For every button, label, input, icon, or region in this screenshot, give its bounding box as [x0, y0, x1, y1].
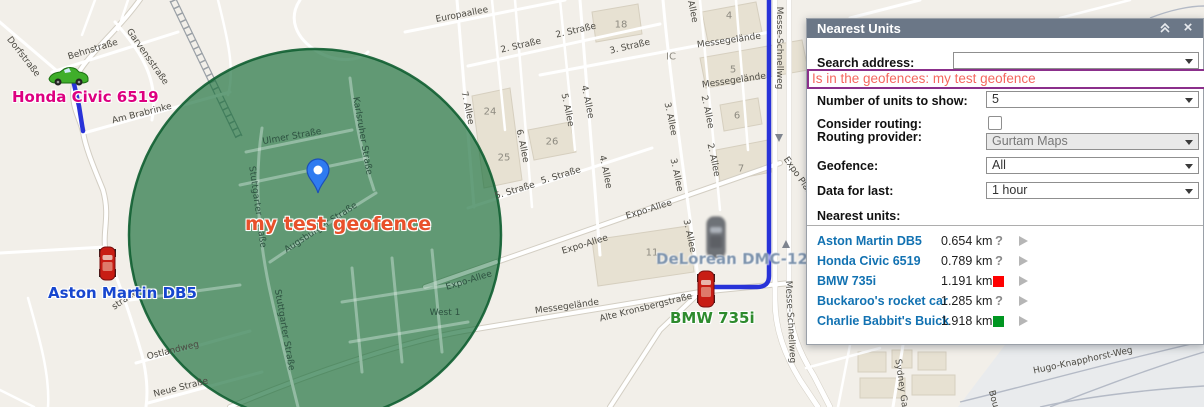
- panel-title: Nearest Units: [817, 21, 901, 36]
- unit-name-link[interactable]: BMW 735i: [817, 271, 876, 291]
- unit-name-link[interactable]: Honda Civic 6519: [817, 251, 921, 271]
- unit-distance: 0.654 km: [941, 231, 992, 251]
- unit-distance: 1.285 km: [941, 291, 992, 311]
- vehicle-marker-delorean[interactable]: [707, 217, 725, 258]
- unit-play-icon[interactable]: [1019, 316, 1028, 326]
- app-root: DorfstraßeBehnstraßeGarvensstraßeAm Brab…: [0, 0, 1204, 407]
- geofence-filter-field[interactable]: Is in the geofences: my test geofence: [807, 69, 1204, 89]
- vehicle-marker-bmw[interactable]: [697, 271, 715, 307]
- units-to-show-select[interactable]: 5: [986, 91, 1199, 108]
- chevron-down-icon: [1185, 59, 1193, 64]
- divider: [807, 225, 1203, 226]
- car-hub: [57, 81, 60, 84]
- unit-distance: 1.918 km: [941, 311, 992, 331]
- close-panel-icon[interactable]: ×: [1180, 19, 1196, 38]
- unit-status-square: [993, 316, 1004, 327]
- unit-row[interactable]: Buckaroo's rocket car1.285 km?: [807, 291, 1203, 311]
- data-for-last-label: Data for last:: [817, 184, 893, 198]
- unit-play-icon[interactable]: [1019, 296, 1028, 306]
- unit-name-link[interactable]: Buckaroo's rocket car: [817, 291, 948, 311]
- geofence-name-label: my test geofence: [245, 213, 431, 235]
- chevron-down-icon: [1185, 98, 1193, 103]
- chevron-down-icon: [1185, 140, 1193, 145]
- geofence-select-label: Geofence:: [817, 159, 878, 173]
- car-windshield: [701, 280, 711, 285]
- geofence-value: All: [992, 158, 1006, 173]
- search-address-select[interactable]: [953, 52, 1199, 69]
- car-windshield: [710, 227, 722, 233]
- unit-row[interactable]: Honda Civic 65190.789 km?: [807, 251, 1203, 271]
- chevron-down-icon: [1185, 189, 1193, 194]
- car-roof: [701, 287, 711, 297]
- car-hub: [78, 81, 81, 84]
- unit-name-link[interactable]: Aston Martin DB5: [817, 231, 922, 251]
- unit-row[interactable]: Charlie Babbit's Buick1.918 km: [807, 311, 1203, 331]
- data-for-last-value: 1 hour: [992, 183, 1027, 198]
- consider-routing-label: Consider routing:: [817, 117, 922, 131]
- units-to-show-value: 5: [992, 92, 999, 107]
- search-address-label: Search address:: [817, 56, 914, 70]
- nearest-units-list: Aston Martin DB50.654 km?Honda Civic 651…: [807, 231, 1203, 331]
- unit-distance: 1.191 km: [941, 271, 992, 291]
- car-windshield: [103, 255, 113, 260]
- unit-row[interactable]: Aston Martin DB50.654 km?: [807, 231, 1203, 251]
- chevron-down-icon: [1185, 164, 1193, 169]
- car-roof: [710, 236, 722, 248]
- routing-provider-value: Gurtam Maps: [992, 134, 1068, 149]
- unit-name-link[interactable]: Charlie Babbit's Buick: [817, 311, 949, 331]
- routing-provider-label: Routing provider:: [817, 130, 922, 144]
- pin-dot: [314, 166, 323, 175]
- unit-status-square: [993, 276, 1004, 287]
- unit-status-unknown-icon: ?: [995, 291, 1003, 311]
- car-roof: [103, 262, 113, 271]
- panel-header[interactable]: Nearest Units ×: [807, 19, 1203, 38]
- routing-provider-select[interactable]: Gurtam Maps: [986, 133, 1199, 150]
- nearest-units-list-label: Nearest units:: [817, 209, 900, 223]
- data-for-last-select[interactable]: 1 hour: [986, 182, 1199, 199]
- collapse-panel-icon[interactable]: [1157, 19, 1173, 38]
- unit-row[interactable]: BMW 735i1.191 km: [807, 271, 1203, 291]
- unit-play-icon[interactable]: [1019, 236, 1028, 246]
- nearest-units-panel: Nearest Units × Search address: Is in th…: [806, 18, 1204, 345]
- units-to-show-label: Number of units to show:: [817, 94, 968, 108]
- unit-play-icon[interactable]: [1019, 256, 1028, 266]
- unit-status-unknown-icon: ?: [995, 231, 1003, 251]
- vehicle-marker-aston[interactable]: [99, 247, 116, 280]
- consider-routing-checkbox[interactable]: [988, 116, 1002, 130]
- unit-status-unknown-icon: ?: [995, 251, 1003, 271]
- unit-distance: 0.789 km: [941, 251, 992, 271]
- geofence-select[interactable]: All: [986, 157, 1199, 174]
- unit-play-icon[interactable]: [1019, 276, 1028, 286]
